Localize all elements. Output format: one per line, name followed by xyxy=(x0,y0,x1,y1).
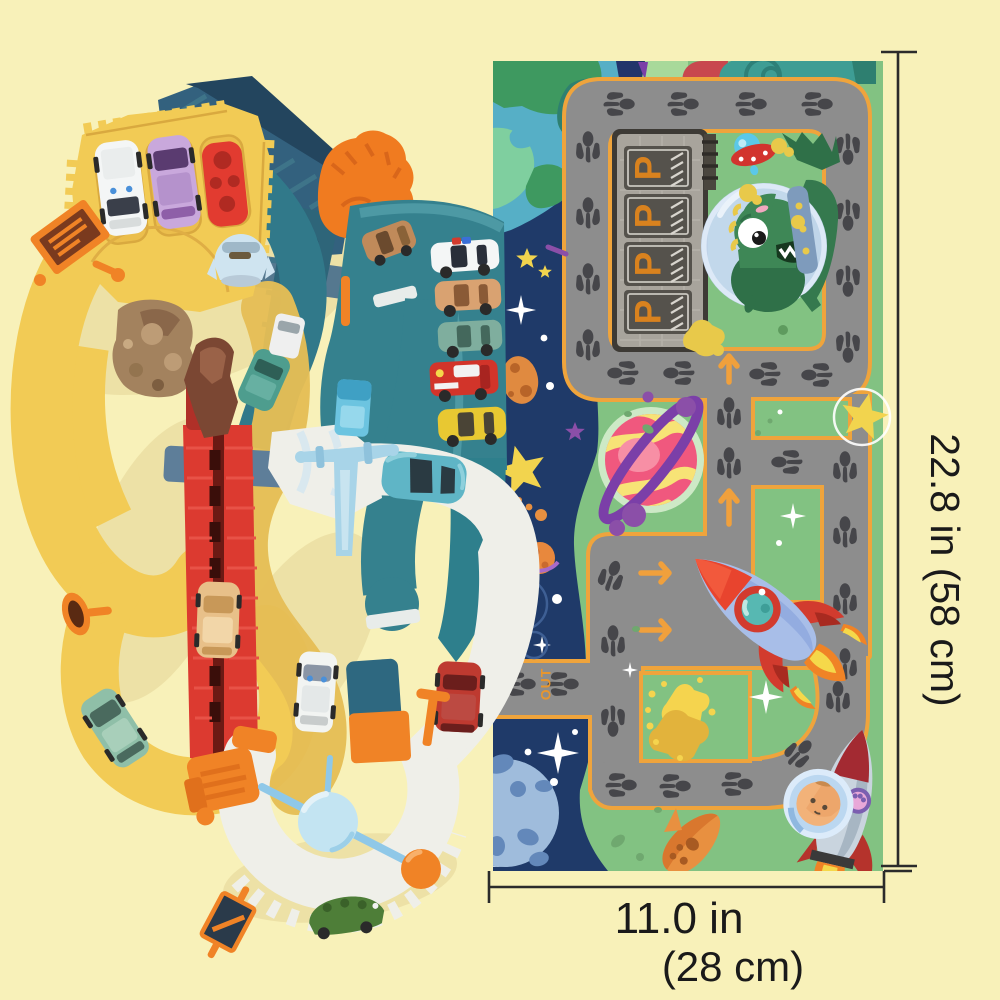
svg-text:P: P xyxy=(628,156,669,181)
svg-text:11.0 in: 11.0 in xyxy=(615,894,744,943)
svg-text:(28 cm): (28 cm) xyxy=(662,943,804,990)
svg-text:OUT: OUT xyxy=(538,668,554,701)
svg-text:22.8 in (58 cm): 22.8 in (58 cm) xyxy=(922,433,968,706)
